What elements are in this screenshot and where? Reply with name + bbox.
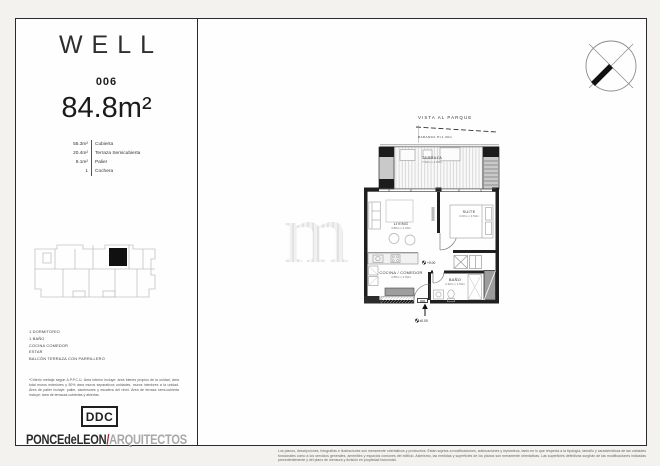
room-label-bano: BAÑO 2.30m x 1.50m: [445, 277, 465, 286]
area-row: 55.3m² Cubierta: [16, 140, 197, 149]
entry-door-number: 006: [417, 298, 428, 303]
area-label: Cubierta: [92, 140, 113, 149]
terrace-railing: [380, 145, 499, 147]
level-symbol-floor: [422, 261, 426, 265]
program-item: 1 BAÑO: [29, 336, 105, 343]
plan-sheet-page: WELL 006 84.8m² 55.3m² Cubierta 20.4m² T…: [0, 0, 660, 466]
floor-plan-drawing: m: [197, 19, 648, 447]
entry-arrow-icon: [422, 304, 428, 317]
total-area: 84.8m²: [16, 92, 197, 125]
area-value: 9.1m²: [16, 158, 92, 167]
area-row: 1 Cochera: [16, 167, 197, 176]
room-label-cocina: COCINA / COMEDOR 3.85m x 2.50m: [379, 270, 422, 279]
studio-name: PONCEdeLEON: [26, 432, 106, 447]
measurement-criteria-note: *Criterio metraje según A.P.P.C.U. Área …: [29, 378, 179, 398]
program-item: ESTAR: [29, 349, 105, 356]
program-item: BALCÓN TERRAZA CON PARRILLERO: [29, 356, 105, 363]
entry-level-mark: ±0.00: [420, 319, 428, 323]
key-plan-diagram: [29, 239, 161, 305]
north-arrow-icon: [586, 41, 636, 91]
area-label: Terraza Semicubierta: [92, 149, 140, 158]
area-value: 55.3m²: [16, 140, 92, 149]
terrace-area: [379, 147, 499, 189]
room-label-terraza: TERRAZA 7.50m x 2.50m: [422, 155, 442, 164]
floor-plan-panel: m: [197, 19, 648, 447]
room-label-suite: SUITE 3.00m x 3.50m: [459, 209, 479, 218]
vista-sight-line: [416, 125, 497, 143]
studio-wordmark: PONCEdeLEON/ARQUITECTOS: [26, 432, 187, 447]
area-label: Palier: [92, 158, 107, 167]
brand-logo: WELL: [16, 31, 197, 60]
area-breakdown-table: 55.3m² Cubierta 20.4m² Terraza Semicubie…: [16, 140, 197, 176]
sheet-frame: WELL 006 84.8m² 55.3m² Cubierta 20.4m² T…: [15, 18, 647, 446]
service-shaft: [484, 271, 496, 301]
ddc-logo: DDC: [81, 406, 118, 427]
level-symbol-entry: [415, 319, 419, 323]
program-item: 1 DORMITORIO: [29, 329, 105, 336]
program-item: COCINA COMEDOR: [29, 343, 105, 350]
area-label: Cochera: [92, 167, 113, 176]
baranda-label: BARANDA H=1.00m: [418, 135, 452, 139]
unit-number: 006: [16, 76, 197, 88]
program-list: 1 DORMITORIO 1 BAÑO COCINA COMEDOR ESTAR…: [29, 329, 105, 363]
area-row: 9.1m² Palier: [16, 158, 197, 167]
brand-watermark: m: [283, 187, 349, 281]
studio-role: ARQUITECTOS: [109, 432, 187, 447]
legal-disclaimer: Los planos, descripciones, fotografías e…: [278, 449, 646, 463]
area-row: 20.4m² Terraza Semicubierta: [16, 149, 197, 158]
area-value: 20.4m²: [16, 149, 92, 158]
area-value: 1: [16, 167, 92, 176]
unit-location-marker: [109, 248, 127, 266]
room-label-living: LIVING 4.85m x 4.00m: [391, 221, 411, 230]
floor-level-mark: +0.00: [427, 261, 435, 265]
vista-al-parque-label: VISTA AL PARQUE: [418, 115, 472, 120]
